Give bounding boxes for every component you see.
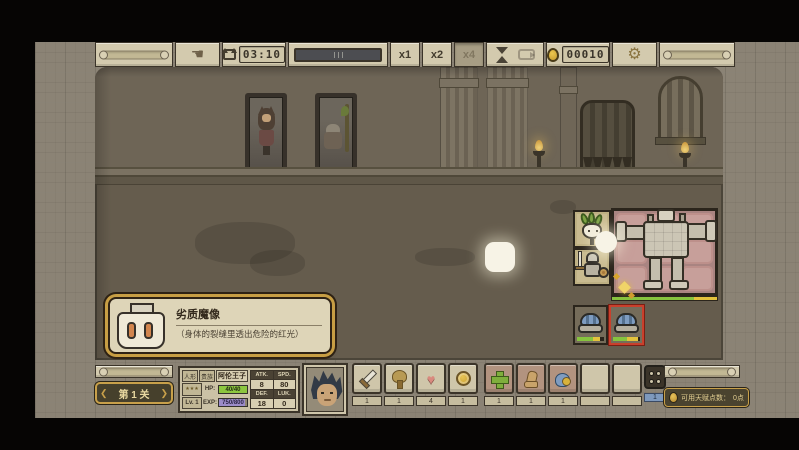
light-orb-small bbox=[595, 231, 617, 253]
wave-progress-panel bbox=[288, 42, 388, 67]
exp-label: EXP: bbox=[203, 397, 217, 409]
battle-scene: 劣质魔像 （身体的裂缝里透出危险的红光） bbox=[95, 67, 723, 360]
empty-slots bbox=[580, 363, 642, 406]
rank-stars: ★★★ bbox=[182, 383, 202, 395]
hand-cursor-button[interactable]: ☚ bbox=[175, 42, 220, 67]
stats-table: ATK. SPD. 8 80 DEF. LUK. 18 0 bbox=[250, 370, 296, 409]
item-count: 1 bbox=[448, 396, 478, 406]
bottom-left-slider[interactable] bbox=[95, 365, 173, 378]
stage-prev-arrow[interactable]: ❮ bbox=[100, 389, 108, 398]
item-slot-empty[interactable] bbox=[580, 363, 610, 406]
top-right-slider[interactable] bbox=[659, 42, 735, 67]
spark-effect bbox=[612, 273, 638, 303]
slider-knob[interactable] bbox=[668, 367, 677, 376]
material-slots: 1 1 1 bbox=[484, 363, 578, 406]
item-count: 4 bbox=[416, 396, 446, 406]
tooltip-description: （身体的裂缝里透出危险的红光） bbox=[176, 329, 322, 340]
hp-value: 40/40 bbox=[219, 386, 247, 394]
talent-gem-icon bbox=[669, 392, 678, 403]
gear-icon: ⚙ bbox=[627, 47, 641, 63]
ally-knight-unit[interactable] bbox=[575, 250, 609, 284]
top-left-slider[interactable] bbox=[95, 42, 173, 67]
flame-icon bbox=[535, 140, 543, 151]
timer-value: 03:10 bbox=[239, 46, 285, 63]
item-count: 1 bbox=[548, 396, 578, 406]
enemy-beetle-unit-selected[interactable] bbox=[609, 305, 644, 345]
wall-molding bbox=[95, 167, 723, 177]
arched-window bbox=[658, 76, 703, 140]
floor-stain bbox=[250, 250, 305, 276]
character-info-panel: 人形 贵族 阿伦王子 ★★★ HP: 40/40 Lv. 1 EXP: 750/… bbox=[178, 366, 300, 413]
wave-progress-bar bbox=[294, 48, 382, 62]
talent-label: 可用天赋点数： bbox=[681, 393, 730, 403]
beetle-health-bar bbox=[613, 337, 640, 341]
stat-value: 0 bbox=[274, 399, 296, 408]
gold-coin-icon bbox=[547, 48, 559, 62]
flame-icon bbox=[681, 142, 689, 153]
item-count: 1 bbox=[484, 396, 514, 406]
light-orb bbox=[485, 242, 515, 272]
speed-x1-button[interactable]: x1 bbox=[390, 42, 420, 67]
tooltip-title: 劣质魔像 bbox=[176, 304, 322, 325]
slider-knob[interactable] bbox=[727, 367, 736, 376]
gold-panel: 00010 bbox=[546, 42, 610, 67]
exp-value: 750/800 bbox=[219, 399, 247, 407]
pillar-small bbox=[560, 67, 577, 171]
item-slot-empty[interactable] bbox=[612, 363, 642, 406]
item-count: 1 bbox=[516, 396, 546, 406]
tree-icon bbox=[391, 370, 407, 388]
slider-track bbox=[669, 367, 735, 376]
pillar-left bbox=[440, 67, 478, 169]
hourglass-icon bbox=[496, 47, 509, 63]
slider-knob[interactable] bbox=[99, 367, 108, 376]
stat-value: 18 bbox=[251, 399, 273, 408]
golem-portrait bbox=[114, 303, 172, 348]
display-case-dwarf bbox=[315, 93, 357, 173]
display-case-glass bbox=[249, 97, 283, 169]
grid-cell-ally[interactable] bbox=[573, 248, 611, 286]
display-case-glass bbox=[319, 97, 353, 169]
page-indicator[interactable]: 1 bbox=[644, 393, 666, 402]
slider-track bbox=[100, 367, 168, 376]
level-label: Lv. 1 bbox=[182, 397, 202, 409]
timer-panel: 03:10 bbox=[222, 42, 286, 67]
hp-bar: 40/40 bbox=[218, 385, 248, 394]
class-tag: 贵族 bbox=[199, 370, 215, 382]
slider-knob[interactable] bbox=[722, 50, 731, 59]
stat-value: 80 bbox=[274, 380, 296, 389]
tooltip-divider bbox=[176, 325, 322, 326]
slider-knob[interactable] bbox=[663, 50, 672, 59]
stage-banner: ❮ 第 1 关 ❯ bbox=[95, 382, 173, 404]
wall-molding-shadow bbox=[95, 177, 723, 185]
speed-x2-button[interactable]: x2 bbox=[422, 42, 452, 67]
consumable-slots: 1 1 ♥ 4 1 bbox=[352, 363, 478, 406]
boot-icon bbox=[523, 371, 539, 387]
beetle-health-bar bbox=[577, 337, 604, 341]
settings-button[interactable]: ⚙ bbox=[612, 42, 657, 67]
character-name: 阿伦王子 bbox=[216, 370, 248, 382]
stat-value: 8 bbox=[251, 380, 273, 389]
stage-label: 第 1 关 bbox=[108, 386, 161, 401]
talent-value: 0点 bbox=[733, 393, 744, 403]
item-count: 1 bbox=[352, 396, 382, 406]
heart-icon: ♥ bbox=[427, 372, 435, 386]
slider-knob[interactable] bbox=[160, 367, 169, 376]
item-slot[interactable]: 1 bbox=[516, 363, 546, 406]
clock-icon bbox=[223, 49, 236, 60]
hand-cursor-icon: ☚ bbox=[191, 47, 204, 62]
display-case-girl bbox=[245, 93, 287, 173]
sword-icon bbox=[358, 370, 376, 388]
race-tag: 人形 bbox=[182, 370, 198, 382]
gold-value: 00010 bbox=[562, 46, 608, 63]
bottom-right-slider[interactable] bbox=[664, 365, 740, 378]
exp-bar: 750/800 bbox=[218, 398, 248, 407]
item-slot[interactable]: 1 bbox=[484, 363, 514, 406]
slider-knob[interactable] bbox=[160, 50, 169, 59]
stat-header: ATK. bbox=[251, 371, 273, 379]
loop-repeat-icon bbox=[518, 49, 535, 60]
game-screen: ☚ 03:10 x1 x2 x4 00010 ⚙ bbox=[0, 0, 799, 450]
bag-page-dots[interactable] bbox=[644, 365, 666, 389]
stat-header: DEF. bbox=[251, 390, 273, 398]
floor-stain bbox=[415, 248, 475, 266]
character-portrait[interactable] bbox=[302, 363, 348, 416]
coin-icon bbox=[456, 371, 471, 386]
pillar-right bbox=[487, 67, 528, 169]
talent-points-badge[interactable]: 可用天赋点数： 0点 bbox=[664, 388, 749, 407]
blue-creature-icon bbox=[555, 372, 571, 386]
speed-x4-button[interactable]: x4 bbox=[454, 42, 484, 67]
stat-header: SPD. bbox=[274, 371, 296, 379]
item-slot[interactable]: 1 bbox=[548, 363, 578, 406]
cross-icon bbox=[491, 371, 507, 387]
hp-label: HP: bbox=[203, 383, 217, 395]
item-count: 1 bbox=[384, 396, 414, 406]
item-slot[interactable]: ♥ 4 bbox=[416, 363, 446, 406]
enemy-beetle-unit[interactable] bbox=[573, 305, 608, 345]
item-slot[interactable]: 1 bbox=[384, 363, 414, 406]
top-hud-bar: ☚ 03:10 x1 x2 x4 00010 ⚙ bbox=[95, 42, 735, 67]
item-slot[interactable]: 1 bbox=[352, 363, 382, 406]
wait-loop-panel[interactable] bbox=[486, 42, 544, 67]
item-slot[interactable]: 1 bbox=[448, 363, 478, 406]
shield-icon bbox=[598, 267, 609, 278]
unit-tooltip: 劣质魔像 （身体的裂缝里透出危险的红光） bbox=[108, 297, 332, 354]
slider-knob[interactable] bbox=[99, 50, 108, 59]
branch-staff bbox=[345, 104, 349, 152]
slider-track bbox=[664, 50, 730, 59]
stage-next-arrow[interactable]: ❯ bbox=[160, 389, 168, 398]
slider-track bbox=[100, 50, 168, 59]
stat-header: LUK. bbox=[274, 390, 296, 398]
